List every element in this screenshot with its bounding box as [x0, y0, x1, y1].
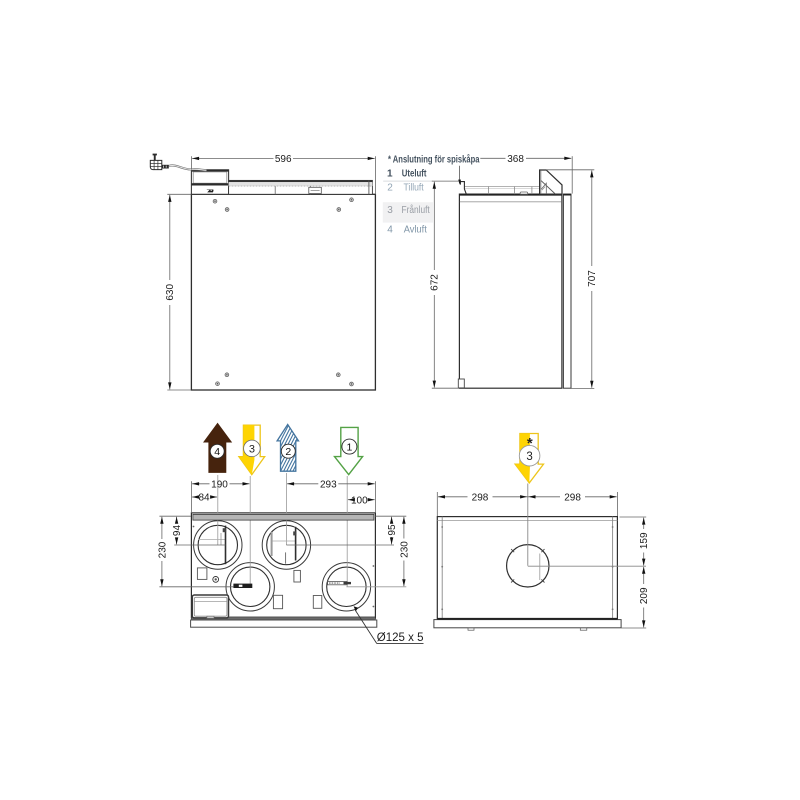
svg-text:Avluft: Avluft: [404, 225, 427, 236]
svg-text:3: 3: [387, 205, 393, 216]
svg-text:190: 190: [211, 479, 228, 490]
svg-text:Uteluft: Uteluft: [402, 169, 427, 180]
svg-text:3: 3: [526, 451, 532, 463]
svg-text:95: 95: [387, 524, 398, 536]
svg-text:Tilluft: Tilluft: [404, 183, 424, 194]
svg-text:298: 298: [472, 492, 489, 503]
svg-text:209: 209: [639, 587, 650, 604]
svg-text:94: 94: [172, 525, 183, 537]
svg-text:Frånluft: Frånluft: [402, 204, 430, 216]
svg-text:4: 4: [214, 446, 220, 458]
svg-text:2: 2: [285, 446, 291, 458]
svg-text:230: 230: [399, 541, 410, 558]
svg-text:368: 368: [507, 154, 524, 165]
svg-text:Ø125 x 5: Ø125 x 5: [377, 632, 424, 644]
svg-text:293: 293: [320, 479, 337, 490]
svg-text:630: 630: [165, 284, 176, 301]
svg-text:3: 3: [249, 443, 255, 455]
svg-text:100: 100: [351, 495, 368, 506]
svg-text:1: 1: [346, 441, 352, 453]
svg-text:230: 230: [157, 541, 168, 558]
svg-text:84: 84: [198, 493, 210, 504]
svg-text:2: 2: [387, 183, 393, 194]
svg-text:4: 4: [387, 225, 393, 236]
svg-text:596: 596: [275, 154, 292, 165]
svg-text:1: 1: [387, 169, 393, 180]
svg-text:707: 707: [587, 270, 598, 287]
svg-text:672: 672: [430, 274, 441, 291]
svg-text:* Anslutning för spiskåpa: * Anslutning för spiskåpa: [388, 154, 480, 166]
svg-text:298: 298: [564, 492, 581, 503]
svg-text:159: 159: [639, 532, 650, 549]
